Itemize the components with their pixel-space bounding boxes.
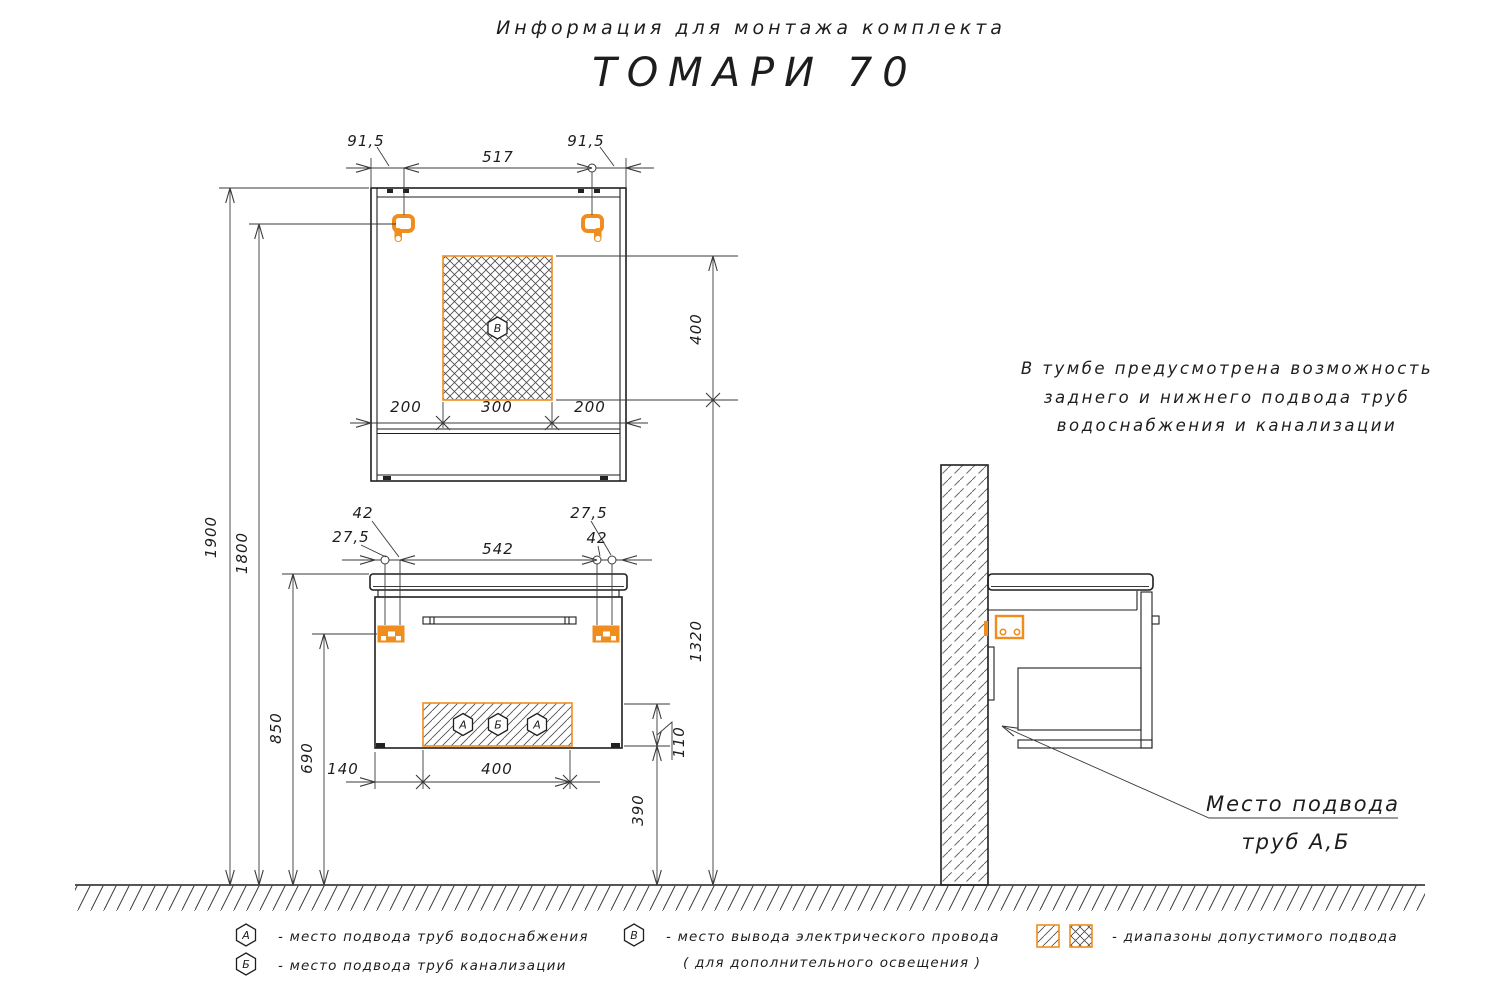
- vanity-front: А Б А: [370, 574, 627, 748]
- legend-swatch-cross: [1070, 925, 1092, 947]
- dim-hatch-height: 400: [687, 313, 705, 345]
- dim-275-left: 27,5: [332, 528, 369, 546]
- dim-140: 140: [327, 760, 359, 778]
- note-line3: водоснабжения и канализации: [1057, 416, 1397, 435]
- title-block: Информация для монтажа комплекта ТОМАРИ …: [496, 17, 1006, 96]
- mirror-dim-top: 91,5 517 91,5: [346, 132, 654, 215]
- dim-mirror-left: 91,5: [347, 132, 384, 150]
- floor-hatch: [75, 886, 1425, 911]
- hook-screw-mark: [594, 189, 600, 193]
- legend-swatch-diagonal: [1037, 925, 1059, 947]
- legend-v-text2: ( для дополнительного освещения ): [683, 955, 981, 971]
- vanity-dim-top: 42 27,5 542 27,5 42: [332, 504, 652, 625]
- drawer-side: [1018, 668, 1141, 730]
- installation-drawing-page: Информация для монтажа комплекта ТОМАРИ …: [0, 0, 1500, 1000]
- vanity-dim-bottom: 140 400: [327, 750, 600, 789]
- page-subtitle: Информация для монтажа комплекта: [496, 17, 1006, 39]
- bracket-wall-plate: [984, 621, 988, 636]
- dim-200-left: 200: [390, 398, 422, 416]
- countertop-side: [988, 574, 1153, 590]
- callout-line1: Место подвода: [1206, 792, 1400, 816]
- hook-screw-mark: [387, 189, 393, 193]
- vanity-corner-mark: [376, 743, 385, 748]
- wall-hook-icon: [394, 216, 413, 242]
- mount-bracket-icon: [378, 626, 404, 642]
- legend-hex-b-label: Б: [242, 958, 250, 971]
- hook-screw-mark: [578, 189, 584, 193]
- dim-400-bottom: 400: [481, 760, 513, 778]
- callout-line2: труб А,Б: [1241, 830, 1350, 854]
- legend: А - место подвода труб водоснабжения Б -…: [237, 924, 1398, 975]
- cabinet-foot-mark: [600, 476, 608, 480]
- legend-v-text1: - место вывода электрического провода: [666, 929, 1000, 945]
- legend-b-text: - место подвода труб канализации: [278, 958, 567, 974]
- dim-mirror-right: 91,5: [567, 132, 604, 150]
- legend-hex-a-label: А: [241, 929, 250, 942]
- dim-300-center: 300: [481, 398, 513, 416]
- legend-hex-v-label: В: [630, 929, 638, 942]
- dim-1800: 1800: [233, 532, 251, 574]
- wall-section: [941, 465, 988, 885]
- note-line2: заднего и нижнего подвода труб: [1044, 388, 1410, 407]
- vanity-dim-right: 1320 110 390: [624, 400, 717, 885]
- dim-mirror-span: 517: [482, 148, 514, 166]
- mirror-dim-bottom: 200 300 200: [350, 398, 648, 430]
- handle-side: [1152, 616, 1159, 624]
- mirror-cabinet-front: В: [371, 188, 626, 481]
- wall-hook-icon: [583, 216, 602, 242]
- hex-label-a1: А: [458, 719, 467, 732]
- mount-bracket-icon: [593, 626, 619, 642]
- page-title-model: ТОМАРИ 70: [592, 50, 917, 96]
- floor: [75, 885, 1425, 911]
- dim-110: 110: [670, 726, 688, 758]
- handle-groove: [423, 617, 576, 624]
- dim-390: 390: [629, 794, 647, 826]
- dim-1900: 1900: [202, 516, 220, 558]
- legend-swatch-text: - диапазоны допустимого подвода: [1112, 929, 1398, 945]
- dim-200-right: 200: [574, 398, 606, 416]
- note-block: В тумбе предусмотрена возможность заднег…: [1021, 359, 1433, 435]
- vanity-bottom-side: [1018, 740, 1152, 748]
- dim-542-span: 542: [482, 540, 514, 558]
- vanity-corner-mark: [611, 743, 620, 748]
- dim-1320: 1320: [687, 620, 705, 662]
- dim-850: 850: [267, 712, 285, 744]
- vanity-front-panel-side: [1141, 592, 1152, 748]
- mirror-dim-400: 400: [556, 256, 738, 407]
- cabinet-foot-mark: [383, 476, 391, 480]
- legend-a-text: - место подвода труб водоснабжения: [278, 929, 589, 945]
- hex-label-a2: А: [532, 719, 541, 732]
- dim-42-right: 42: [586, 529, 607, 547]
- dim-690: 690: [298, 742, 316, 774]
- side-view: Место подвода труб А,Б: [941, 465, 1400, 885]
- note-line1: В тумбе предусмотрена возможность: [1021, 359, 1433, 378]
- hex-label-v: В: [494, 322, 502, 335]
- dim-275-right: 27,5: [570, 504, 607, 522]
- dim-42-left: 42: [352, 504, 373, 522]
- hex-label-b: Б: [494, 719, 502, 732]
- technical-drawing-canvas: Информация для монтажа комплекта ТОМАРИ …: [0, 0, 1500, 1000]
- wall-rail-side: [988, 647, 994, 700]
